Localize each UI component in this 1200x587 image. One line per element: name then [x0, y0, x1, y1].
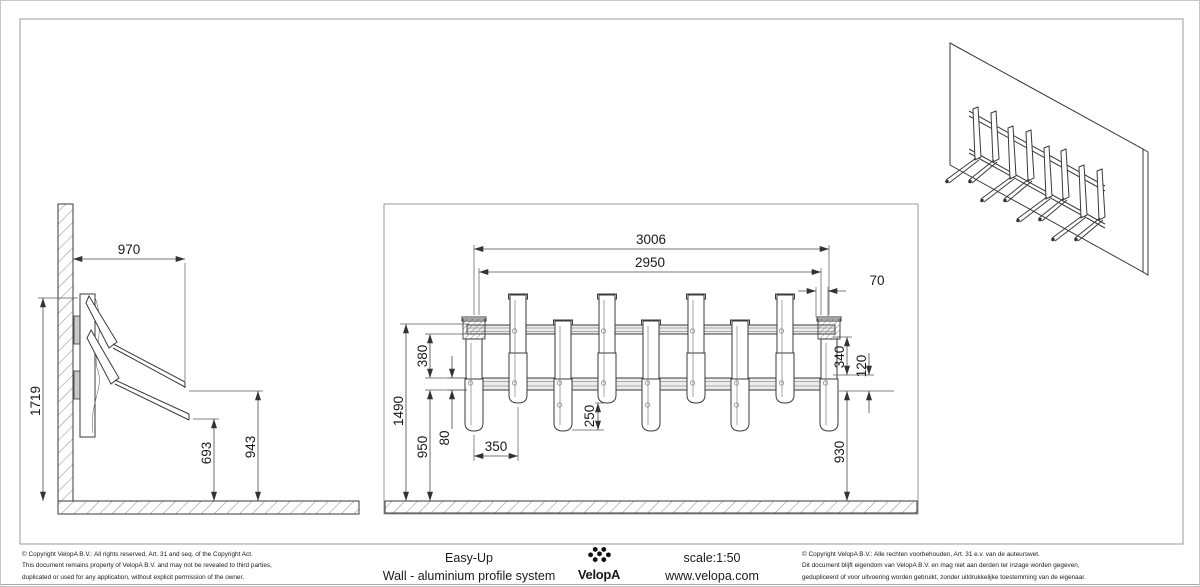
hook-low	[731, 320, 750, 431]
title-block-bottom-rule	[1, 584, 1199, 585]
front-elevation-view: 3006 2950 70 1490 380	[384, 204, 918, 514]
hook-high	[598, 294, 617, 403]
dim-rail-profile: 80	[437, 430, 452, 445]
dimension-70: 70	[798, 273, 885, 317]
dim-side-depth: 970	[118, 242, 141, 257]
isometric-view	[945, 43, 1148, 275]
wall-rack-profile	[74, 294, 189, 437]
copyright-nl-line1: © Copyright VelopA B.V.: Alle rechten vo…	[802, 549, 1192, 560]
copyright-nl-line3: gedupliceerd of voor uitvoering worden g…	[802, 572, 1192, 583]
dim-side-lower-arm: 693	[199, 442, 214, 465]
dim-front-total-height: 1490	[391, 396, 406, 426]
dimension-2950: 2950	[479, 255, 821, 315]
copyright-en-line3: duplicated or used for any application, …	[22, 572, 372, 583]
hook-high	[509, 294, 528, 403]
end-bracket-right	[817, 317, 841, 431]
brand-name: VelopA	[572, 567, 626, 582]
hook-low	[642, 320, 661, 431]
dimension-80: 80	[437, 356, 467, 446]
copyright-en-line2: This document remains property of VelopA…	[22, 560, 372, 571]
brand-block: VelopA	[572, 546, 626, 582]
floor-section-front	[385, 501, 917, 513]
hook-high	[776, 294, 795, 403]
technical-drawing-sheet: 970 1719 943 693	[0, 0, 1200, 587]
dimension-250: 250	[572, 403, 604, 430]
dimension-3006: 3006	[474, 232, 829, 315]
floor-section	[58, 501, 359, 514]
drawing-title: Easy-Up Wall - aluminium profile system	[369, 549, 569, 585]
dim-bracket-to-rail: 340	[832, 346, 847, 369]
velopa-logo-icon	[586, 546, 613, 566]
copyright-dutch: © Copyright VelopA B.V.: Alle rechten vo…	[802, 549, 1192, 583]
dim-hook-spacing: 350	[485, 439, 508, 454]
dim-hook-drop: 250	[582, 405, 597, 428]
bike-hooks	[462, 294, 841, 431]
website-link[interactable]: www.velopa.com	[638, 567, 786, 585]
product-subtitle: Wall - aluminium profile system	[369, 567, 569, 585]
dim-lower-rail-height: 950	[415, 436, 430, 459]
dim-end-offset: 70	[869, 273, 884, 288]
drawing-canvas: 970 1719 943 693	[1, 1, 1200, 587]
hook-low	[554, 320, 573, 431]
copyright-nl-line2: Dit document blijft eigendom van VelopA …	[802, 560, 1192, 571]
dim-clearance: 930	[832, 441, 847, 464]
dimension-380: 380	[415, 334, 467, 378]
scale-label: scale:1:50	[638, 549, 786, 567]
hook-high	[687, 294, 706, 403]
dim-rail-spacing: 380	[415, 345, 430, 368]
dimension-693: 693	[193, 419, 219, 501]
scale-block: scale:1:50 www.velopa.com	[638, 549, 786, 585]
side-elevation-view: 970 1719 943 693	[28, 204, 359, 514]
dim-rail-mount-depth: 120	[854, 355, 869, 378]
wall-section	[58, 204, 73, 501]
dim-mounting-width: 2950	[635, 255, 665, 270]
copyright-english: © Copyright VelopA B.V.: All rights rese…	[22, 549, 372, 583]
copyright-en-line1: © Copyright VelopA B.V.: All rights rese…	[22, 549, 372, 560]
product-name: Easy-Up	[369, 549, 569, 567]
dim-side-total-height: 1719	[28, 386, 43, 416]
dim-side-upper-arm: 943	[243, 436, 258, 459]
dim-overall-width: 3006	[636, 232, 666, 247]
